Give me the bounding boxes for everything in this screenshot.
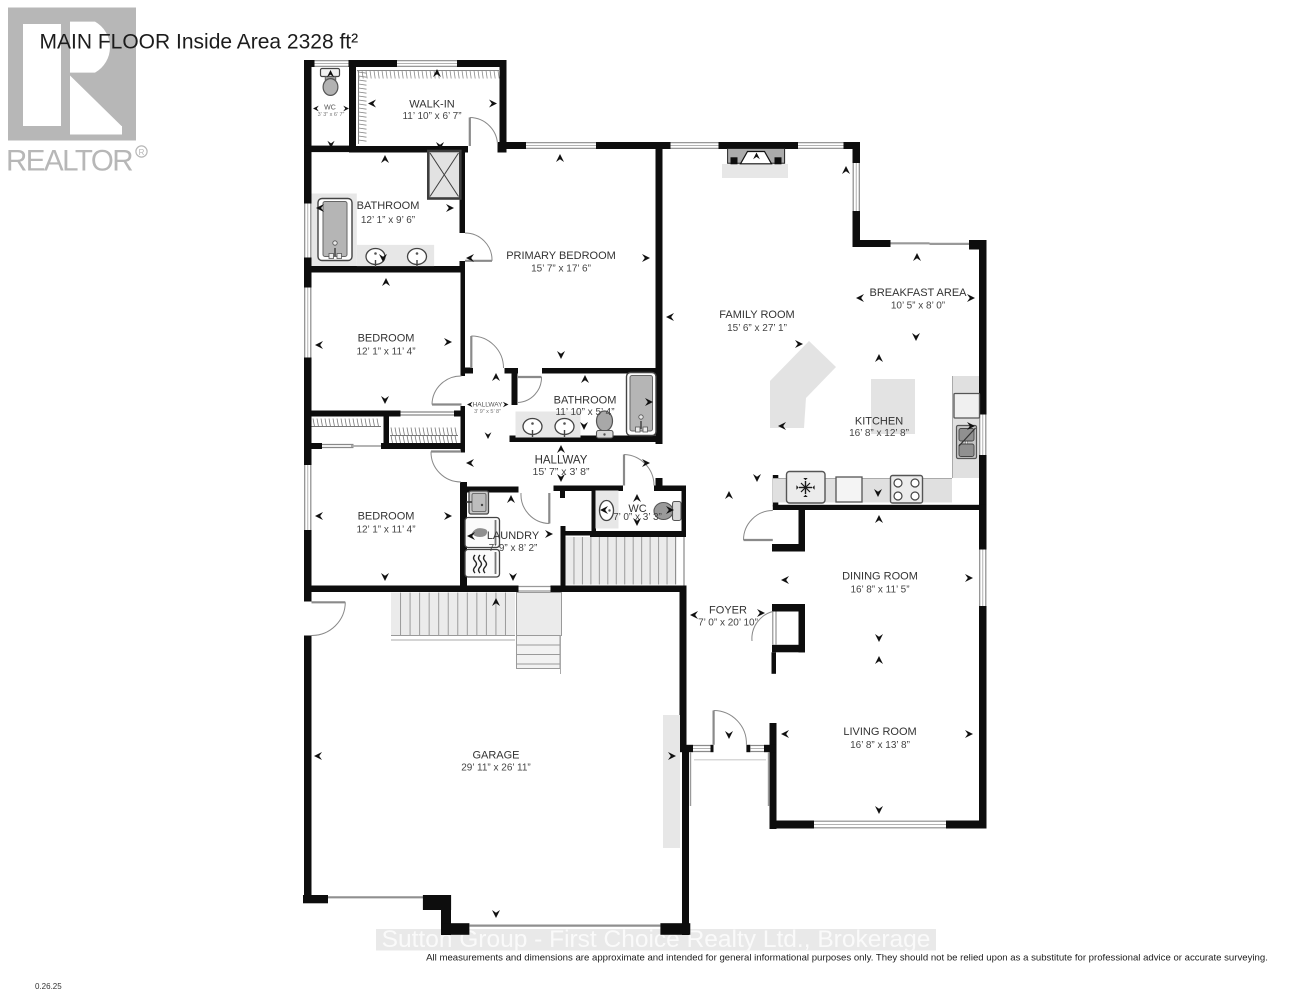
svg-text:WALK-IN: WALK-IN [409, 99, 454, 111]
svg-text:7’ 9” x 8’ 2”: 7’ 9” x 8’ 2” [489, 543, 538, 554]
svg-text:0.26.25: 0.26.25 [35, 982, 62, 991]
svg-text:3’ 9” x 5’ 8”: 3’ 9” x 5’ 8” [474, 409, 501, 415]
svg-text:11’ 10” x 5’ 4”: 11’ 10” x 5’ 4” [555, 407, 614, 418]
svg-text:HALLWAY: HALLWAY [535, 455, 588, 467]
svg-text:All measurements and dimension: All measurements and dimensions are appr… [426, 953, 1268, 964]
svg-text:11’ 10” x 6’ 7”: 11’ 10” x 6’ 7” [402, 111, 461, 122]
svg-text:FAMILY ROOM: FAMILY ROOM [719, 309, 794, 321]
svg-text:12’ 1” x 11’ 4”: 12’ 1” x 11’ 4” [356, 347, 415, 358]
svg-text:LIVING ROOM: LIVING ROOM [843, 726, 916, 738]
svg-text:15’ 7” x 3’ 8”: 15’ 7” x 3’ 8” [533, 466, 590, 478]
svg-text:PRIMARY BEDROOM: PRIMARY BEDROOM [506, 250, 616, 262]
svg-text:LAUNDRY: LAUNDRY [487, 530, 540, 542]
svg-text:BATHROOM: BATHROOM [357, 200, 420, 212]
svg-text:7’ 0” x 20’ 10”: 7’ 0” x 20’ 10” [698, 618, 758, 629]
svg-text:KITCHEN: KITCHEN [855, 416, 903, 428]
svg-text:16’ 8” x 12’ 8”: 16’ 8” x 12’ 8” [849, 428, 909, 439]
svg-text:BREAKFAST AREA: BREAKFAST AREA [869, 287, 967, 299]
svg-text:BEDROOM: BEDROOM [358, 333, 415, 345]
svg-text:10’ 5” x 8’ 0”: 10’ 5” x 8’ 0” [891, 301, 945, 312]
svg-text:REALTOR: REALTOR [6, 145, 132, 178]
svg-text:DINING ROOM: DINING ROOM [842, 571, 918, 583]
svg-text:WC: WC [324, 105, 336, 112]
svg-text:R: R [139, 148, 145, 157]
svg-text:12’ 1” x 9’ 6”: 12’ 1” x 9’ 6” [361, 215, 415, 226]
svg-text:MAIN FLOOR Inside Area 2328 ft: MAIN FLOOR Inside Area 2328 ft² [40, 31, 359, 54]
svg-text:16’ 8” x 13’ 8”: 16’ 8” x 13’ 8” [850, 740, 910, 751]
svg-text:15’ 6” x 27’ 1”: 15’ 6” x 27’ 1” [727, 323, 787, 334]
svg-text:FOYER: FOYER [709, 605, 747, 617]
svg-text:15’ 7” x 17’ 6”: 15’ 7” x 17’ 6” [531, 264, 591, 275]
svg-text:BATHROOM: BATHROOM [554, 395, 617, 407]
svg-text:29’ 11” x 26’ 11”: 29’ 11” x 26’ 11” [461, 763, 530, 774]
svg-text:BEDROOM: BEDROOM [358, 511, 415, 523]
svg-text:GARAGE: GARAGE [472, 750, 519, 762]
svg-text:3’ 3” x 6’ 7”: 3’ 3” x 6’ 7” [318, 112, 345, 118]
svg-text:HALLWAY: HALLWAY [473, 402, 504, 409]
svg-text:16’ 8” x 11’ 5”: 16’ 8” x 11’ 5” [850, 585, 909, 596]
svg-text:12’ 1” x 11’ 4”: 12’ 1” x 11’ 4” [356, 525, 415, 536]
